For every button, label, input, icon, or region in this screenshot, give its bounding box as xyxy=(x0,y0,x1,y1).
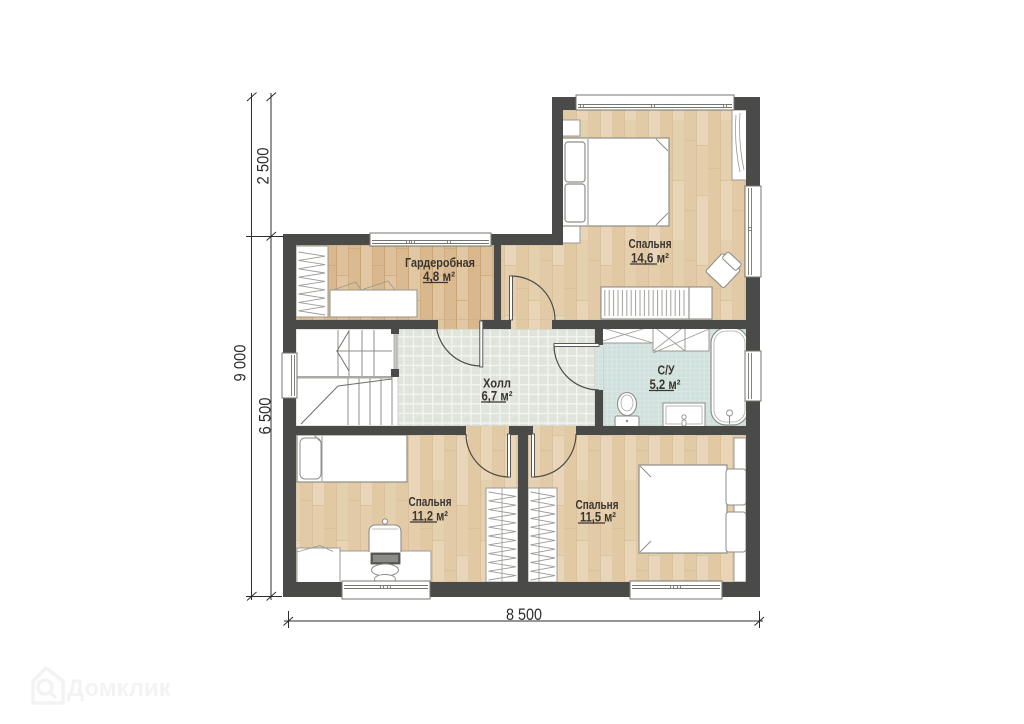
svg-text:11,5 м²: 11,5 м² xyxy=(580,510,616,525)
svg-text:Гардеробная: Гардеробная xyxy=(405,256,475,270)
svg-text:8 500: 8 500 xyxy=(506,605,542,624)
svg-text:2 500: 2 500 xyxy=(254,148,273,185)
svg-text:Спальня: Спальня xyxy=(629,237,672,251)
svg-text:6,7 м²: 6,7 м² xyxy=(482,389,513,404)
svg-text:Спальня: Спальня xyxy=(409,495,452,509)
svg-text:5,2 м²: 5,2 м² xyxy=(650,377,681,392)
svg-text:Домклик: Домклик xyxy=(67,675,172,702)
svg-text:9 000: 9 000 xyxy=(231,345,250,382)
svg-text:14,6 м²: 14,6 м² xyxy=(631,251,669,266)
svg-text:6 500: 6 500 xyxy=(256,398,275,435)
svg-text:С/У: С/У xyxy=(658,364,675,378)
svg-text:4,8 м²: 4,8 м² xyxy=(423,269,455,284)
svg-text:11,2 м²: 11,2 м² xyxy=(412,509,448,524)
